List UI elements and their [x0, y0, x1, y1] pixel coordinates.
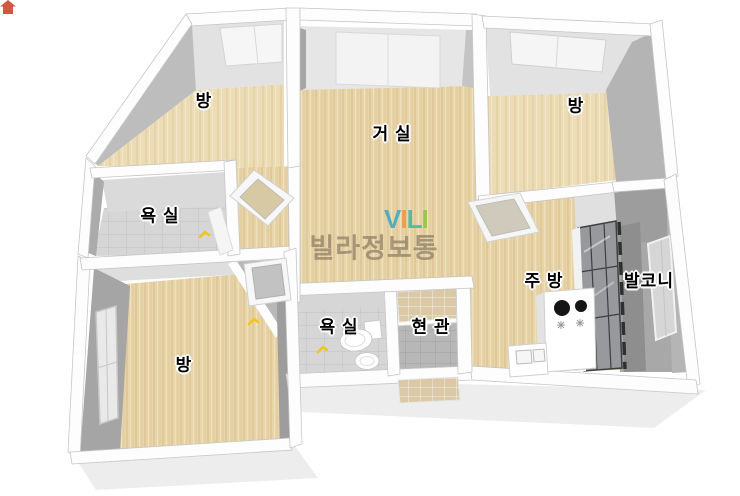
- watermark-text: 빌라정보통: [309, 227, 438, 266]
- floor-living-room: [290, 82, 478, 300]
- room-label-bathroom-lower: 욕 실: [319, 313, 358, 338]
- wall-segment: [300, 8, 476, 26]
- room-label-bedroom-bottom-left: 방: [176, 351, 193, 376]
- stove-knob: [576, 319, 584, 327]
- stove: [544, 288, 596, 372]
- window-bedroom-top-left: [220, 24, 282, 66]
- room-label-bathroom-upper: 욕 실: [140, 202, 179, 227]
- floorplan-page: VILI 빌라정보통 방 거 실 방 욕 실 방 욕 실 현 관 주 방 발코니: [0, 0, 740, 496]
- room-label-kitchen: 주 방: [524, 267, 563, 292]
- wall-segment: [456, 278, 472, 374]
- room-label-balcony: 발코니: [624, 267, 674, 292]
- floor-bedroom-top-right: [484, 90, 617, 196]
- wall-segment: [286, 8, 300, 170]
- room-label-entrance: 현 관: [411, 313, 450, 338]
- room-label-bedroom-top-left: 방: [196, 87, 213, 112]
- entrance-step: [398, 377, 460, 403]
- room-label-living-room: 거 실: [372, 120, 411, 145]
- sink-basin: [355, 353, 379, 370]
- stove-burner: [575, 300, 587, 312]
- door-leaf: [252, 264, 285, 299]
- stove-burner: [554, 300, 570, 316]
- room-label-bedroom-top-right: 방: [568, 92, 585, 117]
- kitchen-sink-bowl: [533, 349, 545, 362]
- stove-knob: [557, 321, 565, 329]
- kitchen-sink-bowl: [516, 350, 532, 364]
- house-icon: [0, 0, 16, 14]
